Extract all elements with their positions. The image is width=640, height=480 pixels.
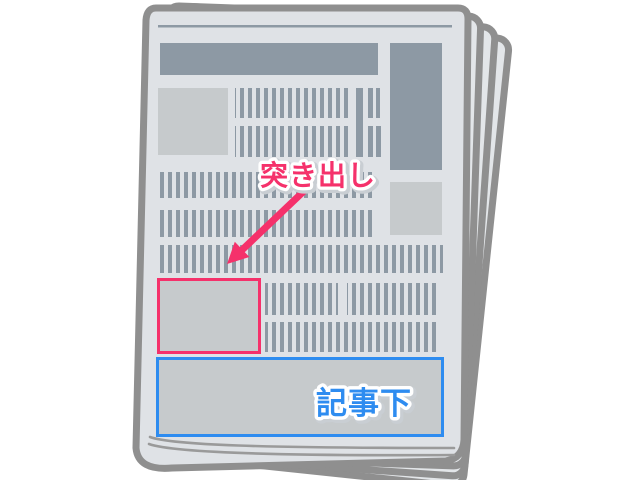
dateline-rule [158, 25, 452, 28]
sub-photo-block [390, 182, 442, 235]
kijishita-label: 記事下 [316, 386, 412, 422]
text-column-stripes-a [235, 88, 352, 118]
stray-bar-2 [376, 88, 380, 118]
stray-bar-4 [376, 126, 381, 157]
right-column-photo-block [390, 43, 442, 170]
tsukidashi-ad-box [159, 280, 260, 353]
text-column-stripes-b [235, 126, 352, 157]
text-column-stripes-f1 [265, 283, 338, 315]
tsukidashi-label: 突き出し [260, 159, 376, 192]
lead-photo-block [158, 88, 228, 155]
column-divider-bar [356, 88, 363, 157]
stray-bar-3 [368, 126, 373, 157]
text-column-stripes-g [265, 322, 440, 352]
text-column-stripes-f2 [347, 283, 440, 315]
stray-bar-1 [368, 88, 373, 118]
text-column-stripes-e [160, 245, 443, 273]
headline-block [160, 43, 378, 75]
newspaper-ad-diagram: 突き出し 突き出し 記事下 記事下 [0, 0, 640, 480]
